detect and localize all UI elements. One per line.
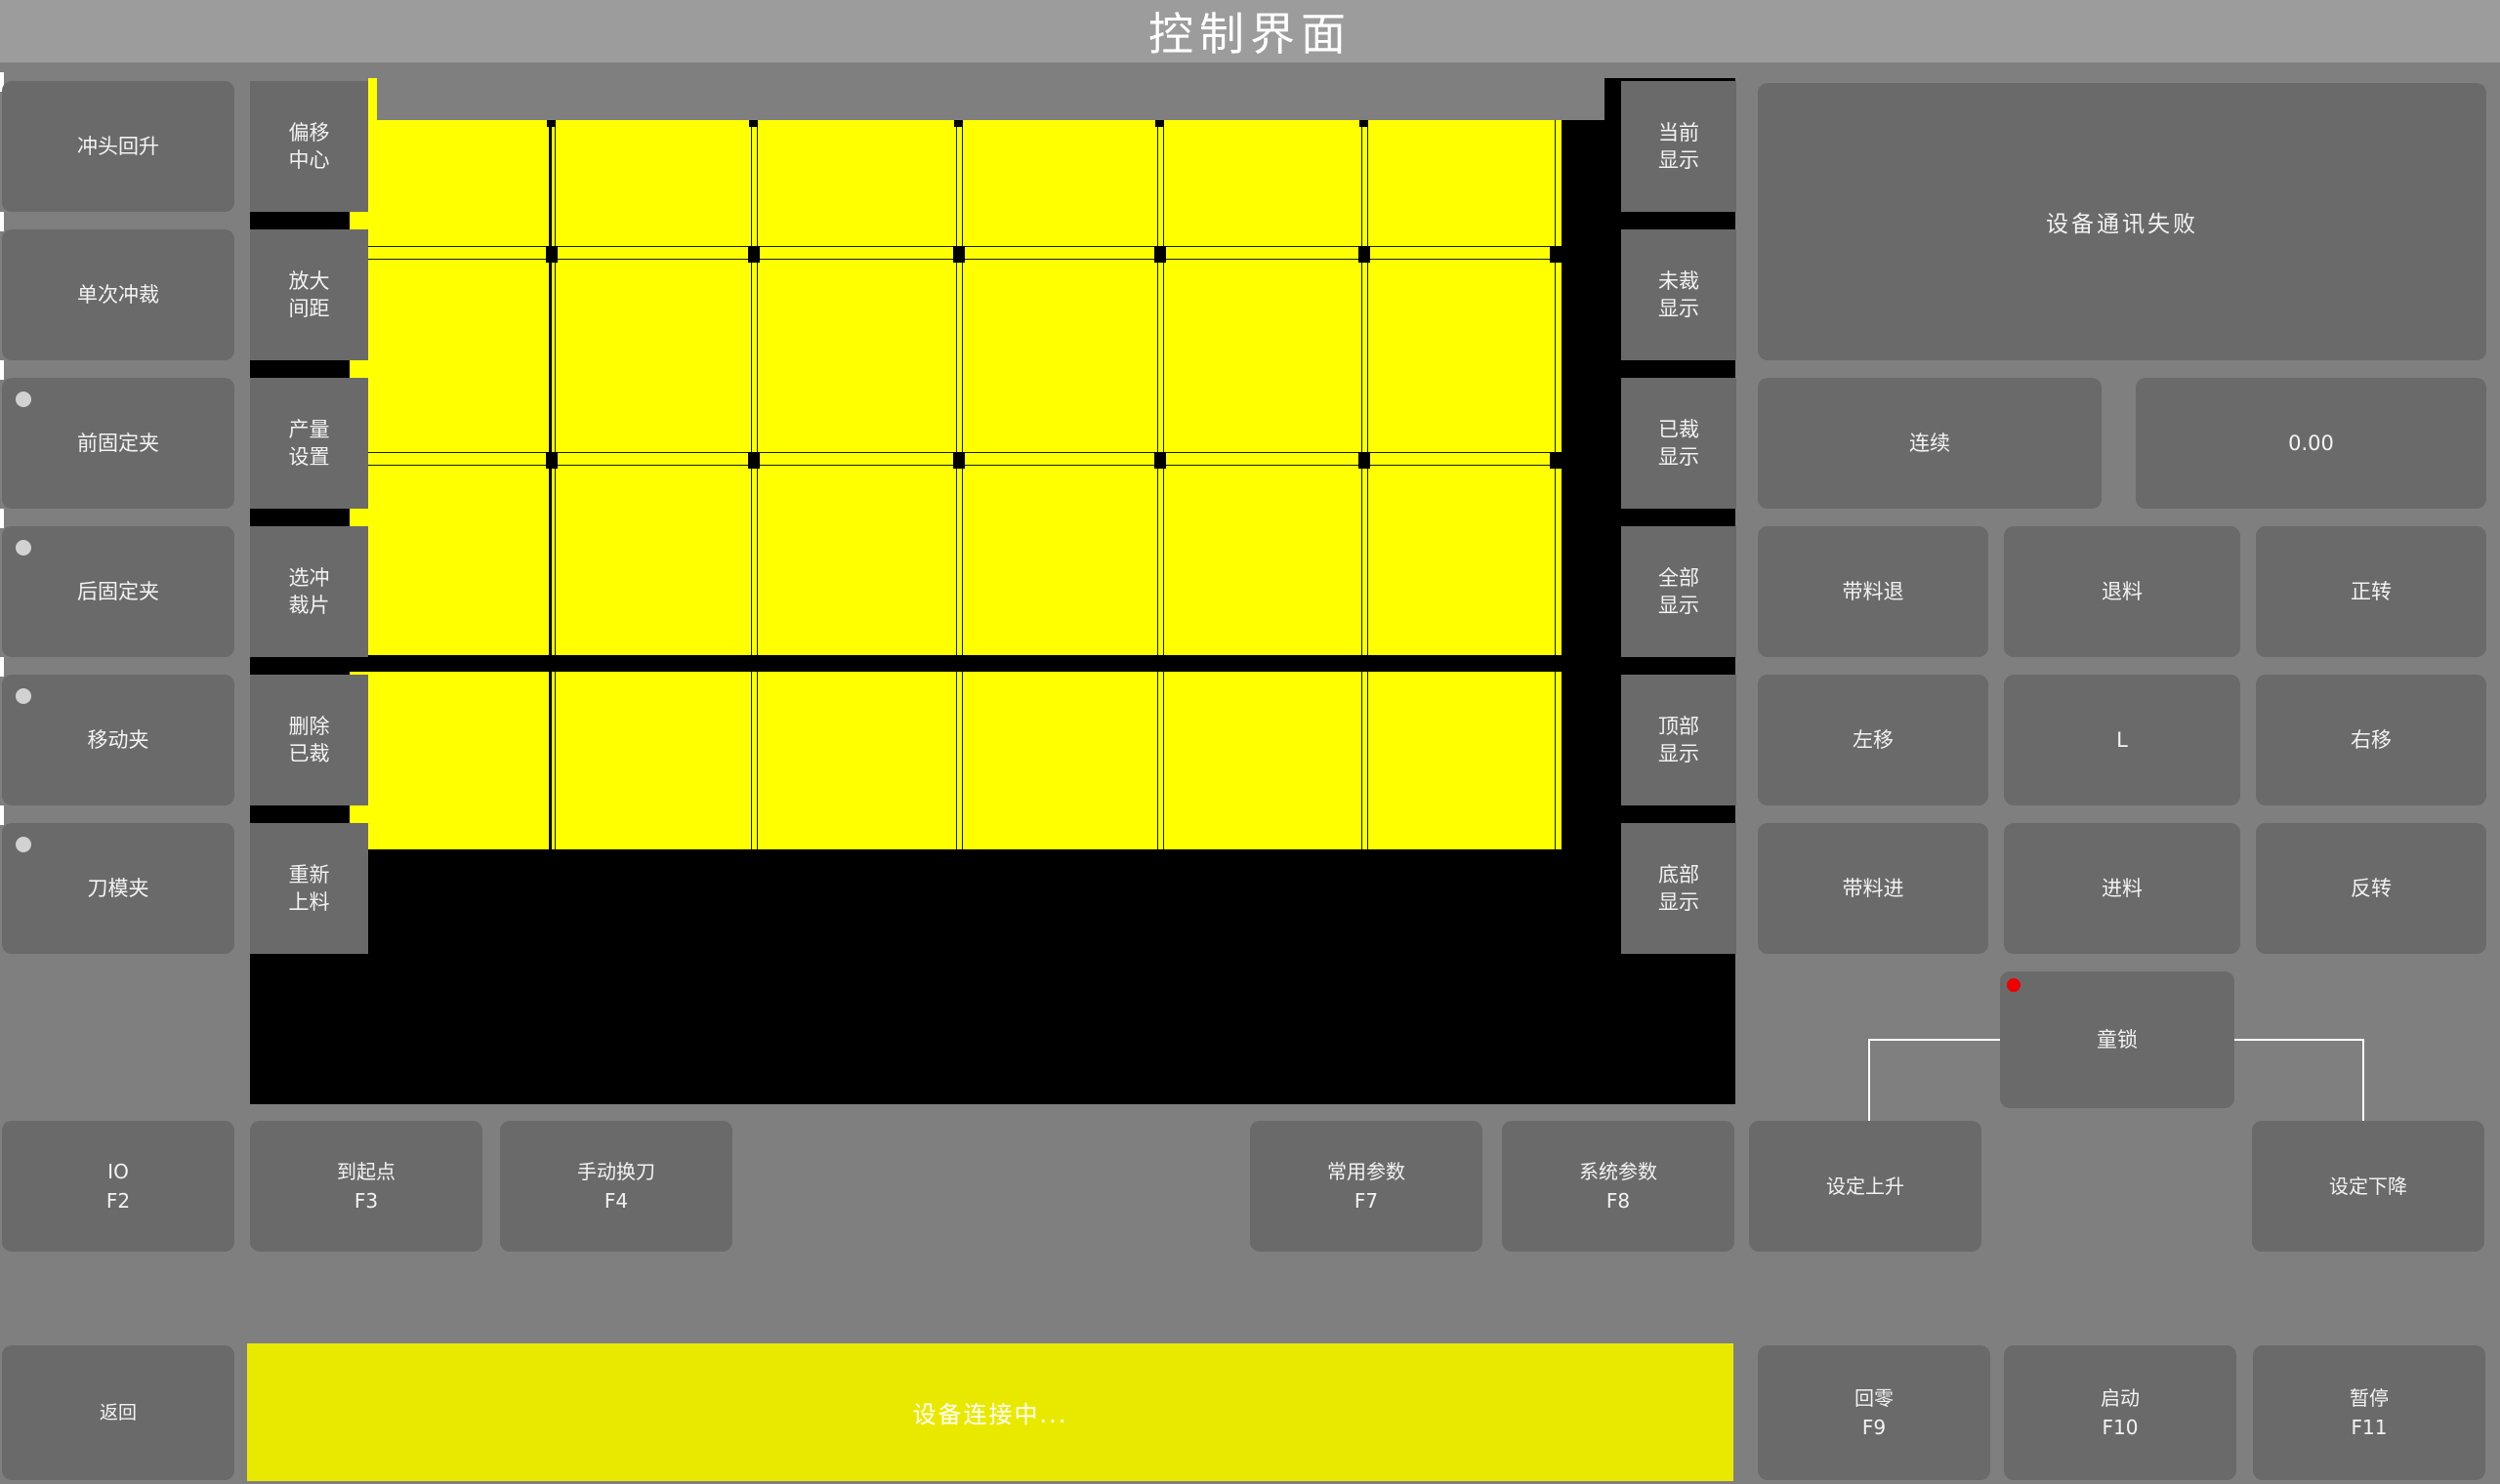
button-label: 放大 [289,268,330,295]
button-label: 全部 [1658,564,1699,592]
button-label: 右移 [2351,726,2392,754]
cut-notch [1154,246,1166,263]
button-label: 正转 [2351,578,2392,605]
value-readout: 0.00 [2136,378,2486,509]
button-label: 未裁 [1658,268,1699,295]
feed-button[interactable]: 进料 [2004,823,2240,954]
go-origin-f3-button[interactable]: 到起点F3 [250,1121,482,1252]
cut-band-horizontal [350,655,1562,672]
button-label: 当前 [1658,119,1699,146]
strip-forward-button[interactable]: 带料进 [1758,823,1988,954]
cut-notch [1550,452,1562,469]
button-label: 启动 [2101,1383,2140,1413]
button-label: 裁片 [289,592,330,619]
child-lock-button[interactable]: 童锁 [2000,971,2234,1108]
button-label: 系统参数 [1579,1157,1657,1186]
cut-line-vertical [757,120,758,849]
button-label: 到起点 [337,1157,396,1186]
continuous-mode-button[interactable]: 连续 [1758,378,2102,509]
wire-line [1868,1039,1870,1123]
button-label: 移动夹 [88,726,149,754]
canvas-top-margin [250,78,1604,120]
button-label: F3 [354,1186,378,1216]
forward-rotate-button[interactable]: 正转 [2256,526,2486,657]
show-uncut-button[interactable]: 未裁显示 [1621,229,1736,360]
button-label: 显示 [1658,443,1699,471]
button-label: 上料 [289,888,330,916]
button-label: 设定下降 [2329,1173,2407,1200]
button-label: 间距 [289,295,330,322]
edge-tick [0,509,4,528]
sheet-right-edge-line [1555,120,1556,849]
cut-tick [749,120,758,127]
edge-tick [0,212,4,231]
button-label: 暂停 [2350,1383,2389,1413]
punch-raise-button[interactable]: 冲头回升 [2,81,234,212]
button-label: 显示 [1658,888,1699,916]
button-label: 连续 [1909,430,1950,457]
button-label: 显示 [1658,146,1699,174]
reverse-rotate-button[interactable]: 反转 [2256,823,2486,954]
title-bar: 控制界面 [0,0,2500,62]
button-label: 设置 [289,443,330,471]
button-label: 中心 [289,146,330,174]
button-label: 返回 [100,1399,137,1426]
delete-cut-button[interactable]: 删除已裁 [250,675,368,805]
sheet-preview[interactable] [350,120,1562,849]
cut-notch [748,452,760,469]
button-label: 刀模夹 [88,875,149,902]
l-button[interactable]: L [2004,675,2240,805]
cut-line-vertical [1367,120,1368,849]
status-dot [16,392,31,407]
connection-status-bar: 设备连接中... [247,1343,1733,1481]
button-label: F8 [1606,1186,1630,1216]
enlarge-spacing-button[interactable]: 放大间距 [250,229,368,360]
cut-tick [1359,120,1368,127]
edge-tick [0,657,4,677]
button-label: 显示 [1658,592,1699,619]
pause-f11-button[interactable]: 暂停F11 [2253,1345,2485,1480]
move-right-button[interactable]: 右移 [2256,675,2486,805]
cut-notch [748,246,760,263]
button-label: 反转 [2351,875,2392,902]
button-label: 回零 [1854,1383,1894,1413]
sheet-origin-marker [368,78,377,120]
control-screen: 控制界面 [0,0,2500,1484]
edge-tick [0,360,4,380]
common-params-f7-button[interactable]: 常用参数F7 [1250,1121,1482,1252]
set-rise-button[interactable]: 设定上升 [1749,1121,1981,1252]
cut-notch [1154,452,1166,469]
button-label: F2 [106,1186,130,1216]
cut-notch [1550,246,1562,263]
cut-notch [953,246,965,263]
readout-value: 0.00 [2288,432,2334,455]
rear-fixed-clamp-button[interactable]: 后固定夹 [2,526,234,657]
button-label: 产量 [289,416,330,443]
yield-settings-button[interactable]: 产量设置 [250,378,368,509]
cut-line-vertical [1157,120,1158,849]
move-left-button[interactable]: 左移 [1758,675,1988,805]
reload-material-button[interactable]: 重新上料 [250,823,368,954]
child-lock-indicator [2007,978,2021,992]
page-title: 控制界面 [1148,0,1352,63]
button-label: 显示 [1658,740,1699,767]
show-all-button[interactable]: 全部显示 [1621,526,1736,657]
cut-notch [546,452,558,469]
button-label: 底部 [1658,861,1699,888]
cut-line-vertical [962,120,963,849]
button-label: 前固定夹 [77,430,159,457]
cut-line-vertical [751,120,752,849]
button-label: 已裁 [289,740,330,767]
cut-line-vertical [549,120,552,849]
button-label: 常用参数 [1327,1157,1405,1186]
offset-center-button[interactable]: 偏移中心 [250,81,368,212]
button-label: 重新 [289,861,330,888]
moving-clamp-button[interactable]: 移动夹 [2,675,234,805]
cut-line-vertical [1163,120,1164,849]
home-f9-button[interactable]: 回零F9 [1758,1345,1990,1480]
button-label: 单次冲裁 [77,281,159,309]
status-dot [16,837,31,852]
button-label: L [2116,726,2128,754]
cut-tick [547,120,556,127]
button-label: 顶部 [1658,713,1699,740]
button-label: IO [107,1157,129,1186]
manual-tool-change-f4-button[interactable]: 手动换刀F4 [500,1121,732,1252]
cut-notch [546,246,558,263]
button-label: F10 [2103,1413,2139,1442]
button-label: 已裁 [1658,416,1699,443]
button-label: 偏移 [289,119,330,146]
button-label: 带料进 [1843,875,1904,902]
status-dot [16,688,31,704]
status-dot [16,540,31,556]
show-cut-button[interactable]: 已裁显示 [1621,378,1736,509]
button-label: 选冲 [289,564,330,592]
button-label: F4 [604,1186,628,1216]
set-lower-button[interactable]: 设定下降 [2252,1121,2484,1252]
cut-line-vertical [956,120,957,849]
button-label: 左移 [1853,726,1894,754]
cut-notch [1358,452,1370,469]
button-label: 带料退 [1843,578,1904,605]
cut-line-vertical [555,120,556,849]
strip-back-button[interactable]: 带料退 [1758,526,1988,657]
comm-status-message: 设备通讯失败 [2046,205,2198,238]
comm-status-panel: 设备通讯失败 [1758,83,2486,360]
button-label: 童锁 [2097,1026,2138,1053]
die-clamp-button[interactable]: 刀模夹 [2,823,234,954]
cut-tick [954,120,963,127]
button-label: 进料 [2102,875,2143,902]
back-button[interactable]: 返回 [2,1345,234,1480]
show-top-button[interactable]: 顶部显示 [1621,675,1736,805]
start-f10-button[interactable]: 启动F10 [2004,1345,2236,1480]
cut-line-vertical [1361,120,1362,849]
show-current-button[interactable]: 当前显示 [1621,81,1736,212]
button-label: 退料 [2102,578,2143,605]
cut-notch [953,452,965,469]
system-params-f8-button[interactable]: 系统参数F8 [1502,1121,1734,1252]
button-label: 删除 [289,713,330,740]
connection-status-message: 设备连接中... [913,1395,1068,1429]
button-label: 设定上升 [1826,1173,1904,1200]
front-fixed-clamp-button[interactable]: 前固定夹 [2,378,234,509]
select-pieces-button[interactable]: 选冲裁片 [250,526,368,657]
button-label: 显示 [1658,295,1699,322]
button-label: F7 [1354,1186,1378,1216]
button-label: 后固定夹 [77,578,159,605]
button-label: 手动换刀 [577,1157,655,1186]
unload-button[interactable]: 退料 [2004,526,2240,657]
single-punch-button[interactable]: 单次冲裁 [2,229,234,360]
wire-line [2362,1039,2364,1123]
io-f2-button[interactable]: IOF2 [2,1121,234,1252]
button-label: F9 [1862,1413,1886,1442]
button-label: 冲头回升 [77,133,159,160]
edge-tick [0,805,4,825]
cut-tick [1155,120,1164,127]
button-label: F11 [2352,1413,2388,1442]
cut-notch [1358,246,1370,263]
show-bottom-button[interactable]: 底部显示 [1621,823,1736,954]
